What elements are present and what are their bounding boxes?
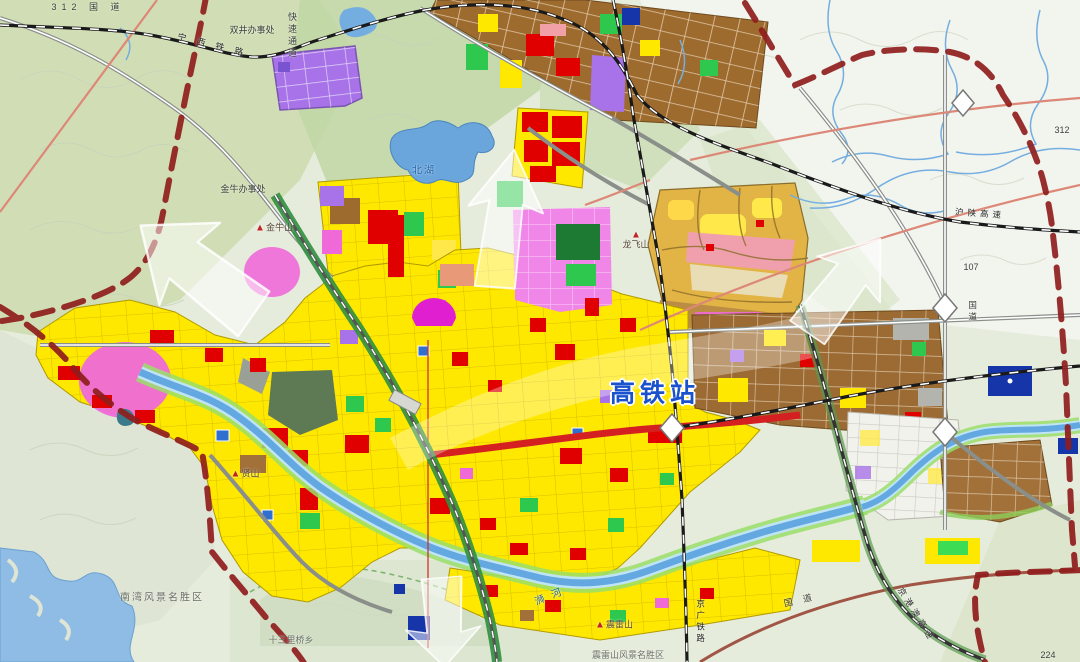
label-expressway: 快速通道 — [286, 12, 296, 60]
label-jinniu-office: 金牛办事处 — [220, 185, 265, 195]
district-southeast-brown — [940, 440, 1052, 522]
label-zhenlei-scenic: 震雷山风景名胜区 — [592, 651, 664, 661]
label-g312-east: 312 — [1054, 126, 1069, 136]
label-224: 224 — [1040, 651, 1055, 661]
label-jinniu-mountain: ▲金牛山 — [255, 223, 293, 234]
planning-map: 312 国 道 宁 西 铁 路 双井办事处 快速通道 金牛办事处 ▲金牛山 北湖… — [0, 0, 1080, 662]
label-longfei-mountain: ▲龙飞山 — [622, 230, 649, 251]
label-hsr-station: 高铁站 — [610, 380, 700, 408]
label-jingguang-railway: 京广铁路 — [695, 599, 704, 645]
label-xian-mountain: ▲贤山 — [231, 469, 260, 480]
label-zhenlei-mountain: ▲震雷山 — [595, 620, 633, 631]
mountain-triangle-icon: ▲ — [255, 223, 265, 234]
label-shisanliqiao: 十三里桥乡 — [268, 636, 313, 646]
label-nanwan-scenic: 南湾风景名胜区 — [120, 593, 204, 604]
label-north-lake: 北湖 — [412, 166, 436, 177]
map-canvas — [0, 0, 1080, 662]
mountain-triangle-icon: ▲ — [231, 469, 241, 480]
label-g312-west: 312 国 道 — [51, 3, 124, 13]
label-shuangjing-office: 双井办事处 — [229, 26, 274, 36]
label-g107-road: 国道 — [967, 301, 976, 324]
label-g107: 107 — [963, 263, 978, 273]
mountain-triangle-icon: ▲ — [595, 620, 605, 631]
